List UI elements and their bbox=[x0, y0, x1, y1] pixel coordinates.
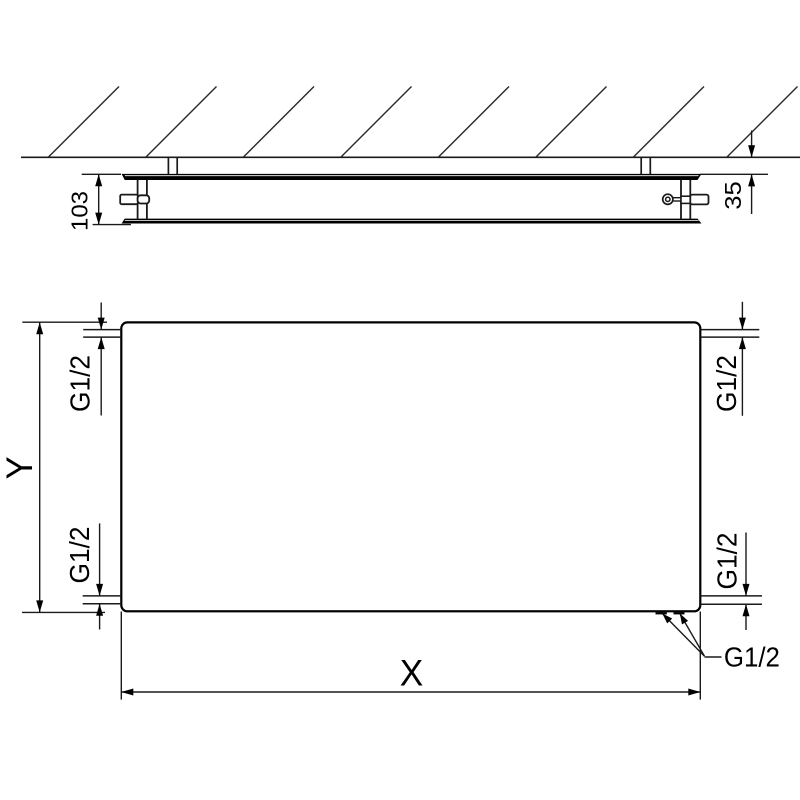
svg-text:35: 35 bbox=[720, 181, 746, 210]
svg-text:X: X bbox=[400, 652, 424, 694]
svg-text:G1/2: G1/2 bbox=[724, 641, 780, 672]
svg-text:G1/2: G1/2 bbox=[64, 355, 95, 412]
svg-text:103: 103 bbox=[67, 191, 93, 231]
svg-text:G1/2: G1/2 bbox=[711, 355, 742, 412]
svg-text:Y: Y bbox=[0, 456, 40, 479]
svg-text:G1/2: G1/2 bbox=[711, 533, 742, 590]
svg-text:G1/2: G1/2 bbox=[64, 527, 95, 584]
